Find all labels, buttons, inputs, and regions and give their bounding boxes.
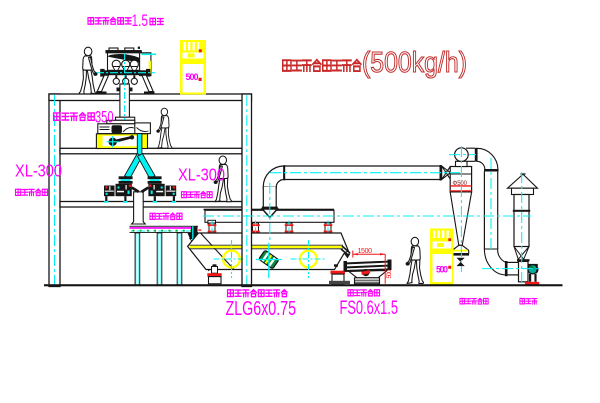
svg-text:500: 500 — [436, 264, 448, 274]
svg-text:ZLG6x0.75: ZLG6x0.75 — [226, 297, 297, 320]
svg-text:500: 500 — [186, 72, 199, 82]
svg-text:500: 500 — [386, 269, 393, 278]
svg-text:XL-300: XL-300 — [178, 164, 225, 184]
svg-text:(500kg/h): (500kg/h) — [362, 47, 467, 79]
svg-text:FS0.6x1.5: FS0.6x1.5 — [340, 297, 399, 319]
svg-text:350: 350 — [95, 109, 114, 127]
svg-text:XL-300: XL-300 — [15, 160, 62, 180]
svg-text:1.5: 1.5 — [132, 12, 149, 30]
svg-text:1500: 1500 — [358, 248, 373, 255]
